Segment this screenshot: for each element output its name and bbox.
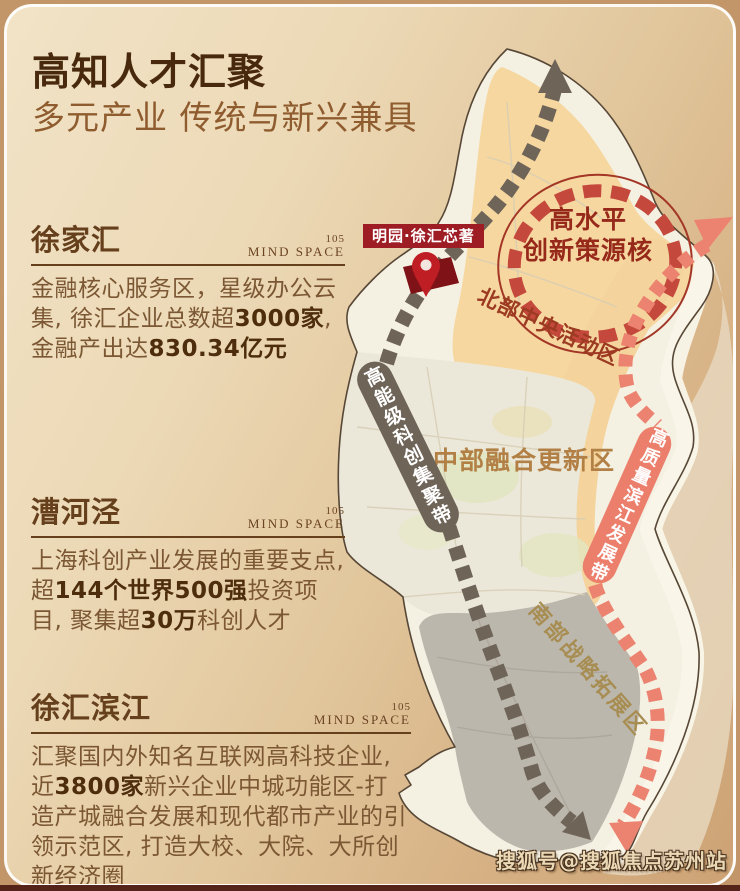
section-title: 徐汇滨江 <box>31 685 151 727</box>
divider <box>31 536 345 538</box>
green-patch <box>519 533 591 577</box>
section-title: 徐家汇 <box>31 217 121 259</box>
page-title: 高知人才汇聚 <box>32 51 418 95</box>
section-title: 漕河泾 <box>31 489 121 531</box>
watermark: 搜狐号@搜狐焦点苏州站 <box>496 845 727 874</box>
section-body: 上海科创产业发展的重要支点, 超144个世界500强投资项目, 聚集超30万科创… <box>31 546 345 636</box>
green-patch <box>492 406 552 438</box>
section-body: 汇聚国内外知名互联网高科技企业, 近3800家新兴企业中城功能区-打造产城融合发… <box>31 742 411 887</box>
brand-mark: 105 MIND SPACE <box>248 506 345 531</box>
header: 高知人才汇聚 多元产业 传统与新兴兼具 <box>32 51 418 137</box>
section-caohejing: 漕河泾 105 MIND SPACE 上海科创产业发展的重要支点, 超144个世… <box>31 489 345 636</box>
brand-mark: 105 MIND SPACE <box>314 702 411 727</box>
section-xuhui-riverside: 徐汇滨江 105 MIND SPACE 汇聚国内外知名互联网高科技企业, 近38… <box>31 685 411 887</box>
project-badge: 明园·徐汇芯著 <box>363 224 484 248</box>
brand-mark: 105 MIND SPACE <box>248 234 345 259</box>
section-xujiahui: 徐家汇 105 MIND SPACE 金融核心服务区，星级办公云集, 徐汇企业总… <box>31 217 345 364</box>
poster-canvas: 高水平 创新策源核 北部中央活动区 中部融合更新区 南部战略拓展区 高能级科创集… <box>0 0 740 891</box>
bottom-edge-strip <box>0 885 740 891</box>
poster-card: 高水平 创新策源核 北部中央活动区 中部融合更新区 南部战略拓展区 高能级科创集… <box>4 4 736 887</box>
divider <box>31 264 345 266</box>
page-subtitle: 多元产业 传统与新兴兼具 <box>32 99 418 137</box>
section-body: 金融核心服务区，星级办公云集, 徐汇企业总数超3000家, 金融产出达830.3… <box>31 274 345 364</box>
zone-label-middle: 中部融合更新区 <box>433 441 615 477</box>
zone-label-innovation-core: 高水平 创新策源核 <box>523 204 653 267</box>
divider <box>31 732 411 734</box>
